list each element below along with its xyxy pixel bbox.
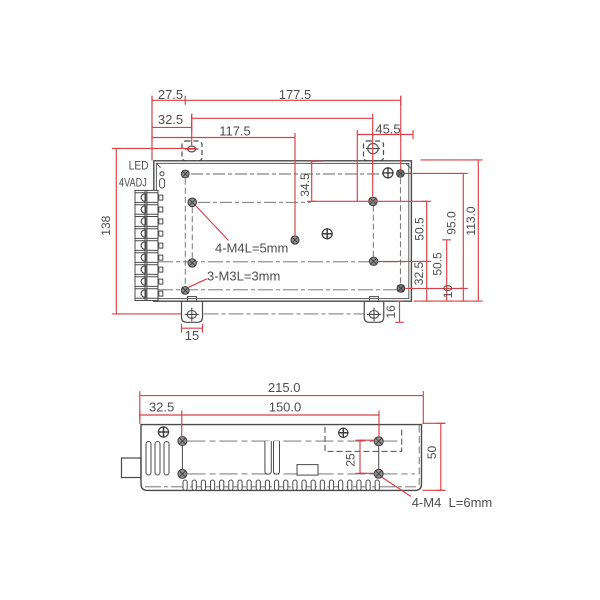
svg-text:138: 138 xyxy=(99,215,113,235)
svg-text:15: 15 xyxy=(185,328,199,343)
svg-text:25: 25 xyxy=(344,453,358,467)
svg-text:27.5: 27.5 xyxy=(158,87,183,102)
svg-text:10: 10 xyxy=(441,285,455,299)
svg-text:50: 50 xyxy=(425,446,439,460)
svg-text:95.0: 95.0 xyxy=(445,211,459,235)
svg-text:16: 16 xyxy=(384,305,398,319)
svg-text:34.5: 34.5 xyxy=(298,173,312,197)
svg-text:32.5: 32.5 xyxy=(412,261,426,285)
svg-text:50.5: 50.5 xyxy=(413,217,427,241)
svg-text:4-M4L=5mm: 4-M4L=5mm xyxy=(215,241,288,256)
svg-text:4VADJ: 4VADJ xyxy=(119,176,147,190)
svg-text:177.5: 177.5 xyxy=(279,87,312,102)
svg-text:4-M4 L=6mm: 4-M4 L=6mm xyxy=(412,495,493,510)
svg-text:50.5: 50.5 xyxy=(431,252,445,276)
svg-text:215.0: 215.0 xyxy=(268,380,301,395)
svg-text:32.5: 32.5 xyxy=(149,400,174,415)
svg-text:3-M3L=3mm: 3-M3L=3mm xyxy=(207,269,280,284)
svg-text:32.5: 32.5 xyxy=(158,112,183,127)
svg-text:45.5: 45.5 xyxy=(375,121,400,136)
svg-text:113.0: 113.0 xyxy=(464,206,478,235)
svg-text:LED: LED xyxy=(129,158,149,172)
svg-text:117.5: 117.5 xyxy=(219,123,251,138)
svg-text:150.0: 150.0 xyxy=(269,400,302,415)
